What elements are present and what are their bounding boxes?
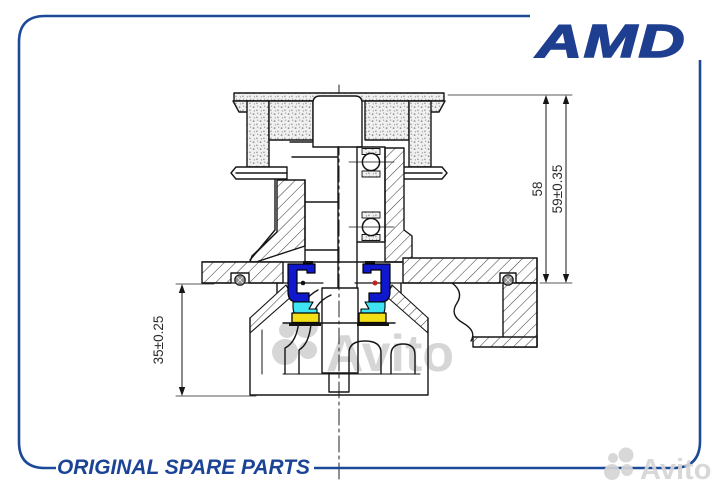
avito-logo-dot-icon xyxy=(608,453,618,463)
seal-assembly-right xyxy=(357,261,390,326)
avito-logo-dot-icon xyxy=(619,448,634,463)
avito-logo-dot-icon xyxy=(604,464,620,480)
brand-tagline: ORIGINAL SPARE PARTS xyxy=(57,456,310,479)
spare-part-drawing-sheet: Avito xyxy=(0,0,720,490)
dimension-label-35: 35±0.25 xyxy=(151,316,166,365)
avito-watermark-corner-text: Avito xyxy=(640,454,711,486)
product-image: Avito xyxy=(0,0,720,490)
marker-dot xyxy=(373,281,378,286)
seal-ring xyxy=(292,313,319,323)
o-ring-left xyxy=(235,275,245,285)
amd-logo: AMD xyxy=(535,15,686,67)
seal-assembly-left xyxy=(288,261,321,326)
avito-logo-dot-icon xyxy=(621,464,633,476)
dimension-label-59: 59±0.35 xyxy=(550,165,565,214)
avito-logo-dot-icon xyxy=(299,341,317,359)
pump-cross-section xyxy=(176,85,572,481)
dimension-label-58: 58 xyxy=(530,181,545,196)
o-ring-right xyxy=(503,275,513,285)
